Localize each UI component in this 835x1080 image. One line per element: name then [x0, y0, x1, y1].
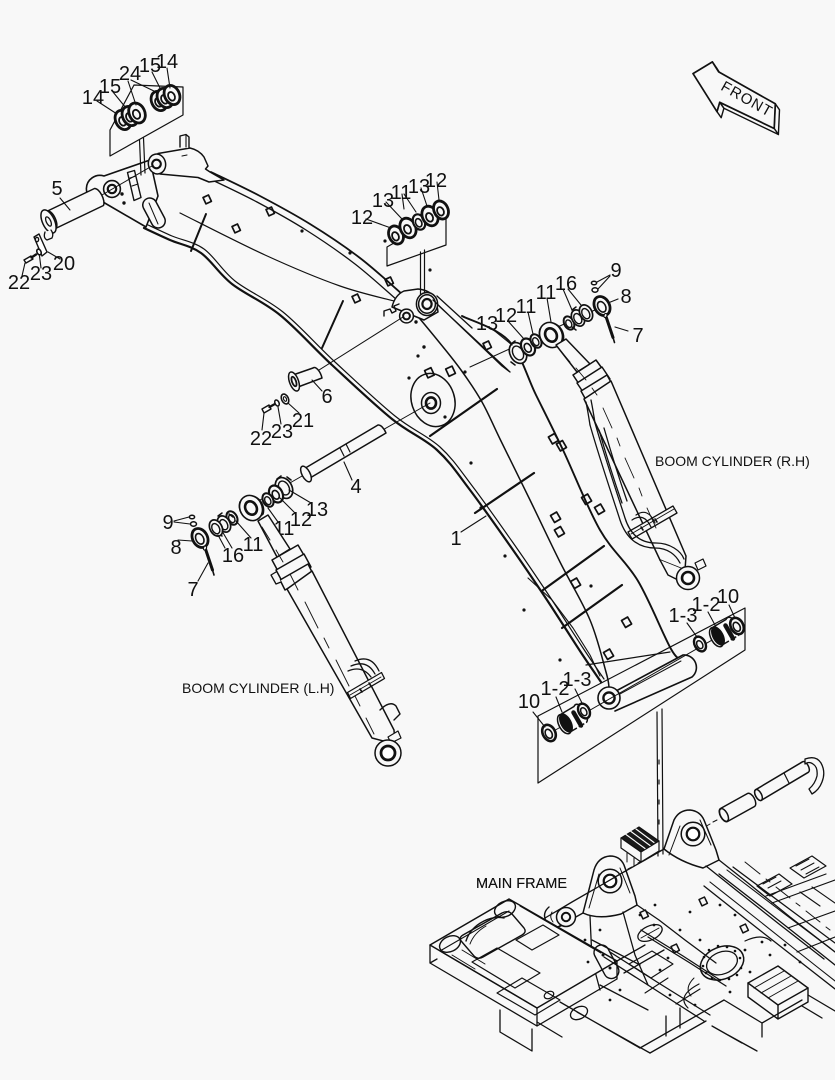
svg-text:21: 21	[292, 410, 314, 432]
svg-text:10: 10	[518, 691, 540, 713]
svg-text:12: 12	[495, 305, 517, 327]
svg-text:12: 12	[351, 207, 373, 229]
svg-text:23: 23	[271, 421, 293, 443]
svg-text:23: 23	[30, 263, 52, 285]
svg-text:8: 8	[620, 286, 631, 308]
svg-text:11: 11	[516, 296, 537, 318]
svg-text:BOOM CYLINDER (R.H): BOOM CYLINDER (R.H)	[655, 453, 810, 469]
svg-text:24: 24	[119, 63, 141, 85]
svg-text:BOOM CYLINDER (L.H): BOOM CYLINDER (L.H)	[182, 680, 334, 696]
svg-text:5: 5	[51, 178, 62, 200]
svg-text:7: 7	[187, 579, 198, 601]
svg-text:11: 11	[243, 534, 264, 556]
svg-text:13: 13	[306, 499, 328, 521]
svg-text:14: 14	[156, 51, 178, 73]
svg-text:9: 9	[162, 512, 173, 534]
svg-text:1-3: 1-3	[563, 669, 592, 691]
svg-text:1: 1	[450, 528, 461, 550]
svg-text:22: 22	[250, 428, 272, 450]
svg-text:15: 15	[99, 76, 121, 98]
svg-text:20: 20	[53, 253, 75, 275]
svg-text:6: 6	[321, 386, 332, 408]
svg-text:11: 11	[536, 282, 557, 304]
svg-text:12: 12	[425, 170, 447, 192]
svg-text:7: 7	[632, 325, 643, 347]
svg-text:16: 16	[555, 273, 577, 295]
svg-text:22: 22	[8, 272, 30, 294]
svg-text:10: 10	[717, 586, 739, 608]
svg-text:8: 8	[170, 537, 181, 559]
svg-text:16: 16	[222, 545, 244, 567]
svg-text:MAIN FRAME: MAIN FRAME	[476, 876, 567, 892]
svg-text:9: 9	[610, 260, 621, 282]
